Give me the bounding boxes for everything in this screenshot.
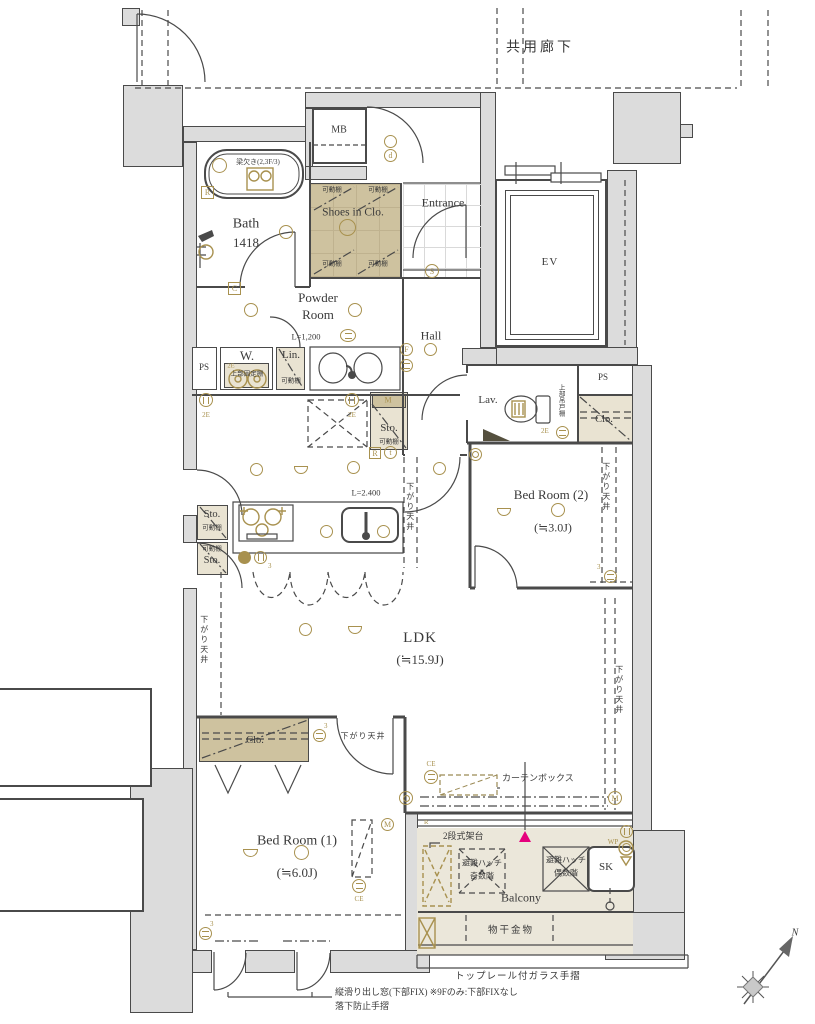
north-label: N <box>792 928 799 939</box>
downlight-icon <box>244 303 258 317</box>
r-mark: R <box>424 819 428 826</box>
hatch-even-note: 偶数階 <box>554 870 578 879</box>
ldk-label: LDK <box>403 630 437 647</box>
outlet-2e-label: 2E <box>202 412 210 420</box>
balcony-items <box>417 831 688 968</box>
multimedia-symbol: M <box>381 818 394 831</box>
counter-height-note: L=1,200 <box>291 332 320 341</box>
movable-shelf-note: 可動棚 <box>322 186 342 193</box>
movable-shelf-note: 可動棚 <box>281 377 301 384</box>
laundry-fitting-note: 物干金物 <box>488 926 534 936</box>
movable-shelf-note: 可動棚 <box>368 186 388 193</box>
bed1-size: (≒6.0J) <box>277 866 318 880</box>
washer-2e: 2E <box>227 362 234 369</box>
outlet-symbol <box>352 879 366 893</box>
elevator-doors <box>505 162 625 345</box>
vanity-counter <box>310 347 400 390</box>
ceiling-cap-symbol <box>399 791 413 805</box>
downlight-icon <box>347 461 360 474</box>
downlight-icon <box>424 343 437 356</box>
hatch-note: 避難ハッチ <box>462 860 502 869</box>
ceiling-height-note: L=2.400 <box>351 488 380 497</box>
compass-icon <box>737 936 793 1004</box>
outlet-symbol <box>556 426 569 439</box>
shoes-closet-label: Shoes in Clo. <box>322 207 384 220</box>
corridor-label: 共用廊下 <box>506 40 574 55</box>
outlet-symbol <box>199 927 212 940</box>
remote-symbol: R <box>201 186 214 199</box>
powder-room-label: Powder <box>298 291 338 305</box>
hatch-note: 避難ハッチ <box>546 857 586 866</box>
downlight-icon <box>299 623 312 636</box>
ps-label: PS <box>199 363 209 373</box>
lowered-ceiling-note: 下がり天井 <box>601 462 610 512</box>
waterproof-outlet-symbol <box>620 825 633 838</box>
heater-symbol <box>340 329 356 342</box>
powder-room-label2: Room <box>302 308 334 322</box>
lav-label: Lav. <box>478 394 497 406</box>
bath-size: 1418 <box>233 236 259 250</box>
lowered-ceiling-note: 下がり天井 <box>199 615 208 665</box>
outlet-symbol <box>400 359 413 372</box>
sk-label: SK <box>599 861 613 873</box>
storage-k1-label: Sto. <box>204 509 221 521</box>
glass-rail-note: トップレール付ガラス手摺 <box>455 972 581 982</box>
floor-plan: 共用廊下 MB 梁欠き(2,3F/3) Bath 1418 Shoes in C… <box>0 0 815 1024</box>
outlet-symbol <box>199 393 213 407</box>
washer-label: W. <box>240 349 254 363</box>
lowered-ceiling-note: 下がり天井 <box>341 733 386 742</box>
bed2-size: (≒3.0J) <box>534 521 572 534</box>
lowered-ceiling-note: 下がり天井 <box>405 482 414 532</box>
curtain-box-note: カーテンボックス <box>502 774 574 784</box>
downlight-icon <box>279 225 293 239</box>
two-tier-stand-note: 2段式架台 <box>443 832 484 842</box>
switch-symbol: S <box>425 264 439 278</box>
gas-outlet-symbol <box>238 551 251 564</box>
outlet-symbol <box>254 551 267 564</box>
bottom-windows <box>214 952 332 997</box>
thermostat-symbol: t <box>384 446 397 459</box>
remote-symbol: C <box>228 282 241 295</box>
downlight-icon <box>377 525 390 538</box>
downlight-icon <box>250 463 263 476</box>
window-note: 縦滑り出し窓(下部FIX) ※9Fのみ:下部FIXなし <box>335 988 518 998</box>
outlet-symbol <box>313 729 326 742</box>
fan-symbol: F <box>400 343 413 356</box>
balcony-label: Balcony <box>501 891 541 904</box>
linen-label: Lin. <box>282 349 300 361</box>
ps-label: PS <box>598 373 608 383</box>
orientation-marker-icon <box>519 831 531 842</box>
movable-shelf-note: 可動棚 <box>202 524 222 531</box>
refrigerator-outlet-symbol: R <box>369 447 381 459</box>
movable-shelf-note: 可動棚 <box>322 260 342 267</box>
shower-fixture-icon <box>196 230 214 268</box>
downlight-icon <box>551 503 565 517</box>
closet-bed2-label: Clo. <box>595 414 613 426</box>
wp-label: WP <box>608 839 619 847</box>
downlight-icon <box>212 158 227 173</box>
dust-chute-symbol: d <box>384 149 397 162</box>
outlet-3-label: 3 <box>597 564 601 572</box>
window-band <box>420 797 608 806</box>
movable-shelf-note: 可動棚 <box>368 260 388 267</box>
multimedia-symbol: M <box>608 791 622 805</box>
outlet-symbol <box>345 393 359 407</box>
wp-circle-icon <box>622 843 631 852</box>
corridor-lines <box>135 8 768 88</box>
beam-note: 梁欠き(2,3F/3) <box>236 159 280 167</box>
downlight-icon <box>339 219 356 236</box>
outlet-2e-label: 2E <box>348 412 356 420</box>
fall-rail-note: 落下防止手摺 <box>335 1002 389 1012</box>
outlet-2e-label: 2E <box>541 428 549 436</box>
outlet-3-label: 3 <box>324 723 328 731</box>
entrance-label: Entrance <box>422 196 465 209</box>
ldk-size: (≒15.9J) <box>396 653 443 667</box>
storage-hall-label: Sto. <box>380 422 397 434</box>
closet-bed1-label: Clo. <box>246 735 264 747</box>
hall-label: Hall <box>421 329 442 342</box>
ce-label: CE <box>427 761 436 769</box>
movable-shelf-note: 可動棚 <box>379 438 399 445</box>
hanging-cabinet-note: 上部吊戸棚 <box>557 384 564 417</box>
lowered-ceiling-note: 下がり天井 <box>614 665 623 715</box>
outlet-3-label: 3 <box>210 921 214 929</box>
downlight-icon <box>320 525 333 538</box>
downlight-icon <box>433 462 446 475</box>
movable-shelf-note: 可動棚 <box>202 545 222 552</box>
refrigerator-space <box>308 400 367 447</box>
fixed-shelf-note: 上部固定棚 <box>231 370 264 377</box>
meter-label: M <box>384 397 391 406</box>
hatch-odd-note: 奇数階 <box>470 873 494 882</box>
downlight-icon <box>348 303 362 317</box>
ceiling-cap-symbol <box>469 448 482 461</box>
curtain-box <box>440 775 500 795</box>
outlet-symbol <box>604 570 617 583</box>
bed2-label: Bed Room (2) <box>514 488 588 502</box>
downlight-icon <box>294 845 309 860</box>
mb-label: MB <box>331 125 347 136</box>
bath-label: Bath <box>233 216 259 231</box>
downlight-icon <box>384 135 397 148</box>
outlet-3-label: 3 <box>268 563 272 571</box>
storage-k2-label: Sto. <box>204 555 221 567</box>
ce-label: CE <box>355 896 364 904</box>
ev-label: EV <box>542 256 559 268</box>
outlet-symbol <box>424 770 438 784</box>
